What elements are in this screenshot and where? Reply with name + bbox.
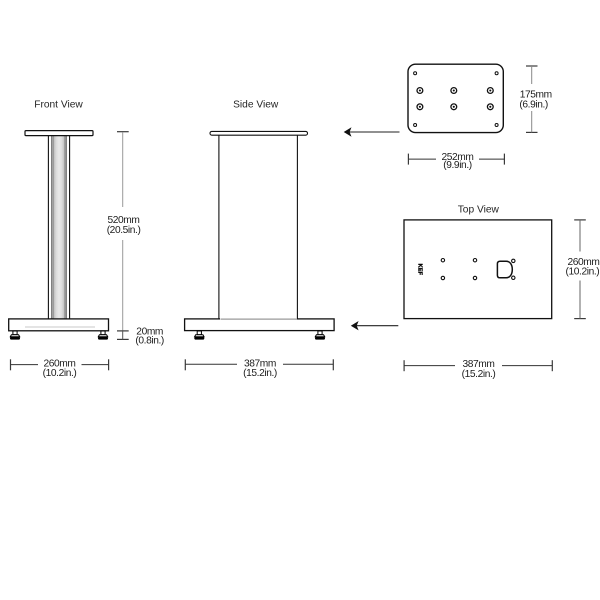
- svg-text:(20.5in.): (20.5in.): [107, 225, 141, 236]
- svg-text:Top View: Top View: [458, 204, 500, 215]
- svg-text:(0.8in.): (0.8in.): [135, 336, 164, 347]
- svg-text:KEF: KEF: [417, 264, 423, 276]
- svg-text:Side View: Side View: [233, 100, 279, 111]
- svg-text:(9.9in.): (9.9in.): [443, 160, 472, 171]
- svg-text:(10.2in.): (10.2in.): [566, 266, 600, 277]
- svg-text:(15.2in.): (15.2in.): [243, 368, 277, 379]
- svg-text:(6.9in.): (6.9in.): [519, 100, 548, 111]
- svg-text:(10.2in.): (10.2in.): [43, 368, 77, 379]
- svg-text:(15.2in.): (15.2in.): [462, 369, 496, 380]
- svg-text:Front View: Front View: [34, 100, 83, 111]
